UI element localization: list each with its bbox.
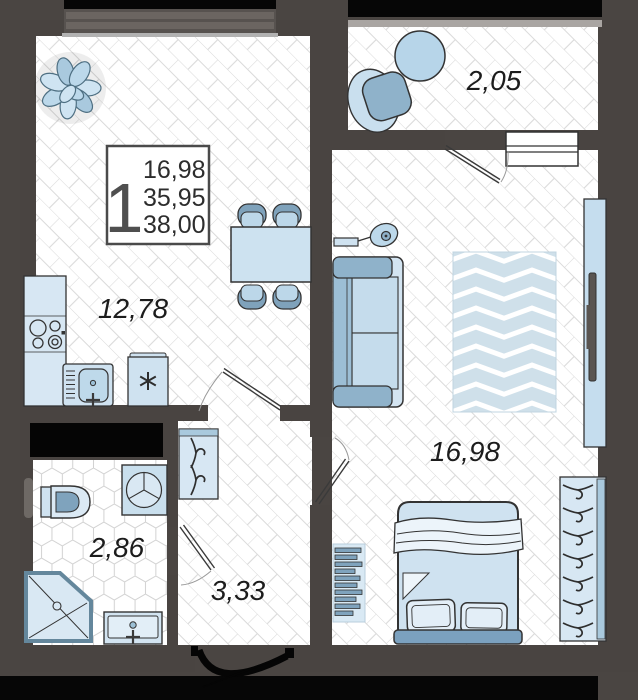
balcony-area-label: 2,05 <box>466 65 522 96</box>
kitchen-window-pane <box>66 22 274 29</box>
area-living-value: 16,98 <box>143 156 206 184</box>
washbasin <box>104 612 162 644</box>
dining-chair <box>273 285 301 309</box>
tv-console <box>584 199 606 447</box>
wall-kitchen-bedroom <box>310 130 332 437</box>
hallway-area-label: 3,33 <box>211 575 266 606</box>
top-left-shaft <box>64 0 276 9</box>
wall-hall-bedroom <box>310 505 332 645</box>
wall-bath-right-lower <box>167 575 178 645</box>
wall-kitchen-balcony <box>310 20 348 132</box>
vent-shaft <box>30 423 163 457</box>
sofa-armrest <box>333 386 392 407</box>
area-no-balcony-value: 35,95 <box>143 184 206 212</box>
shower-drain <box>53 602 61 610</box>
toilet <box>41 486 90 518</box>
kitchen-window-sill <box>62 33 278 37</box>
rug <box>453 252 556 412</box>
sofa-cushion <box>352 277 398 333</box>
pillow <box>461 603 508 634</box>
headboard <box>394 630 522 644</box>
dish-rack <box>66 371 75 398</box>
balcony-table <box>395 31 445 81</box>
hall-closet <box>179 429 218 499</box>
dining-chair <box>273 204 301 228</box>
wall-bottom-left <box>20 645 195 672</box>
fridge <box>128 353 168 406</box>
bedroom-area-label: 16,98 <box>430 436 500 467</box>
info-box: 1 16,98 35,95 38,00 <box>105 146 209 247</box>
pillow <box>406 599 455 633</box>
bed <box>394 502 523 644</box>
plant <box>34 52 106 124</box>
bottom-shaft <box>0 676 598 700</box>
sofa-cushion <box>352 333 398 389</box>
lamp-shelf <box>334 238 358 246</box>
tv <box>589 273 596 381</box>
kitchen-window-pane <box>66 12 274 19</box>
bedroom-balcony-window <box>506 132 578 166</box>
top-right-shaft <box>348 0 602 17</box>
area-total-value: 38,00 <box>143 211 206 239</box>
room-count: 1 <box>105 169 144 247</box>
tv-bracket <box>587 305 590 349</box>
bed-throw <box>394 518 523 554</box>
wall-kitchen-hall-left <box>178 405 208 421</box>
dining-chair <box>238 285 266 309</box>
sink-drain <box>90 380 95 385</box>
wall-bath-right-upper <box>167 460 178 527</box>
wall-kitchen-hall-right <box>280 405 332 421</box>
kitchen-sink-unit <box>63 364 113 407</box>
sofa-armrest <box>333 257 392 278</box>
floor-plan-svg: 1 16,98 35,95 38,00 12,78 2,05 <box>0 0 638 700</box>
kitchen-counter <box>24 276 66 406</box>
balcony-glazing <box>348 20 602 27</box>
floor-plan: 1 16,98 35,95 38,00 12,78 2,05 <box>0 0 638 700</box>
washing-machine <box>122 465 167 515</box>
wall-bottom-right <box>290 645 606 672</box>
sofa-back <box>333 270 352 394</box>
towel-rail <box>24 478 33 518</box>
wardrobe <box>560 477 606 641</box>
bathroom-area-label: 2,86 <box>89 532 145 563</box>
dining-chair <box>238 204 266 228</box>
bookshelf <box>333 544 365 622</box>
dining-table <box>231 227 311 282</box>
kitchen-area-label: 12,78 <box>98 293 168 324</box>
wall-balcony-left <box>332 130 445 150</box>
sofa <box>333 257 403 407</box>
